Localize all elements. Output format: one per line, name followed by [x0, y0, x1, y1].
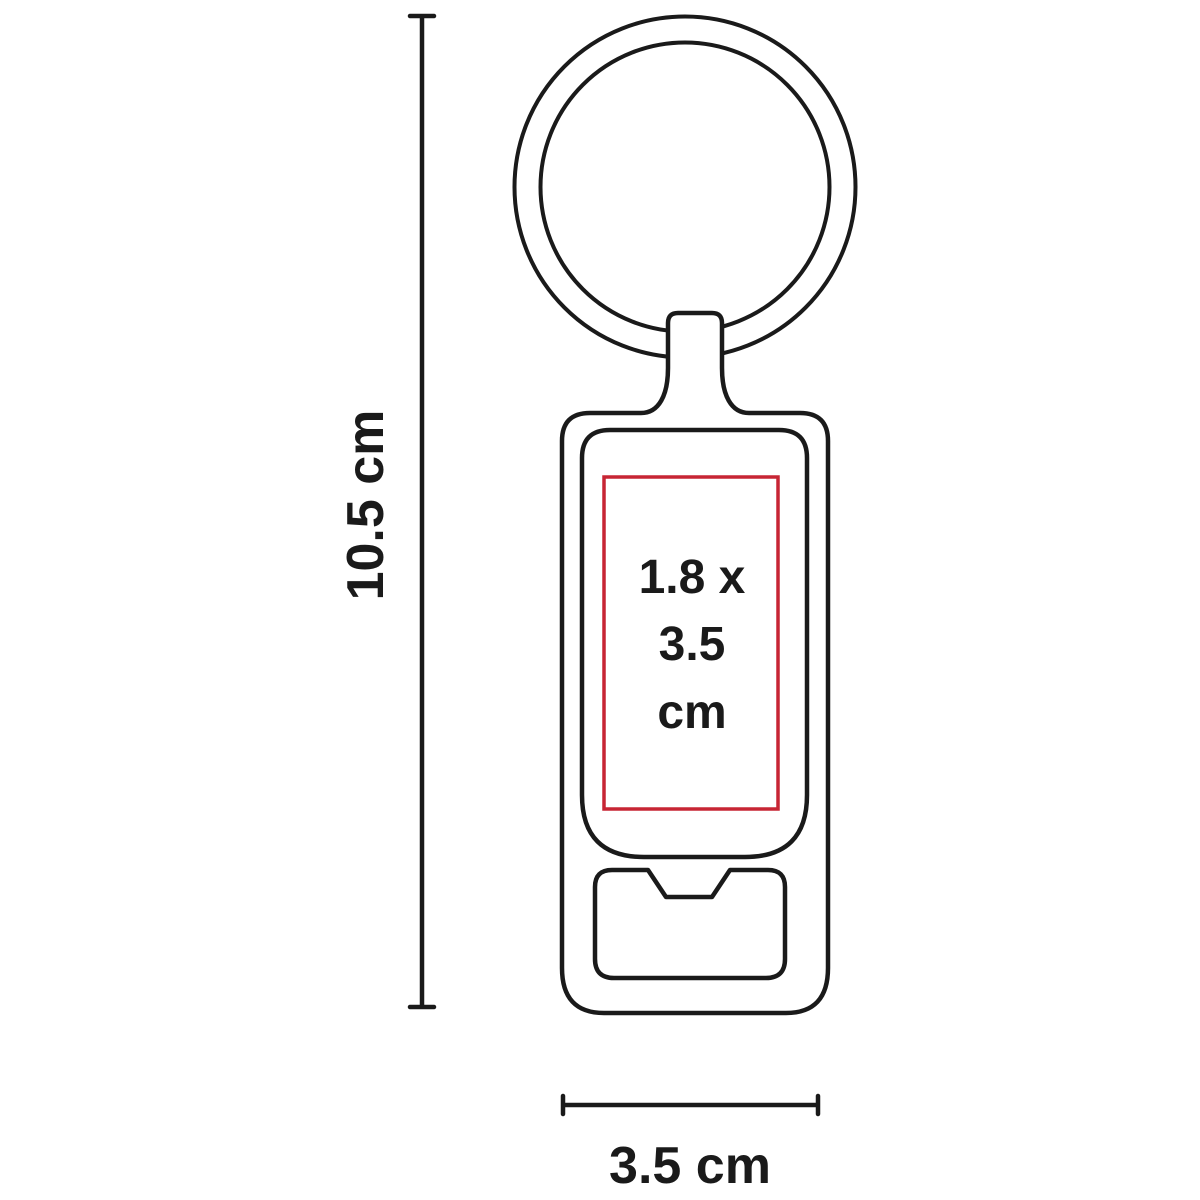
diagram-svg: 1.8 x 3.5 cm 10.5 cm 3.5 cm: [0, 0, 1200, 1200]
width-dimension-line: [563, 1096, 818, 1114]
width-dimension-label: 3.5 cm: [609, 1137, 771, 1195]
print-area-size-line3: cm: [657, 686, 726, 739]
print-area-size-line1: 1.8 x: [639, 551, 746, 604]
keychain-dimension-diagram: 1.8 x 3.5 cm 10.5 cm 3.5 cm: [0, 0, 1200, 1200]
height-dimension-label: 10.5 cm: [337, 410, 395, 601]
keyring-outer-circle: [515, 17, 856, 358]
height-dimension-line: [410, 16, 434, 1007]
print-area-size-line2: 3.5: [659, 618, 726, 671]
keyring-inner-circle: [541, 43, 830, 332]
